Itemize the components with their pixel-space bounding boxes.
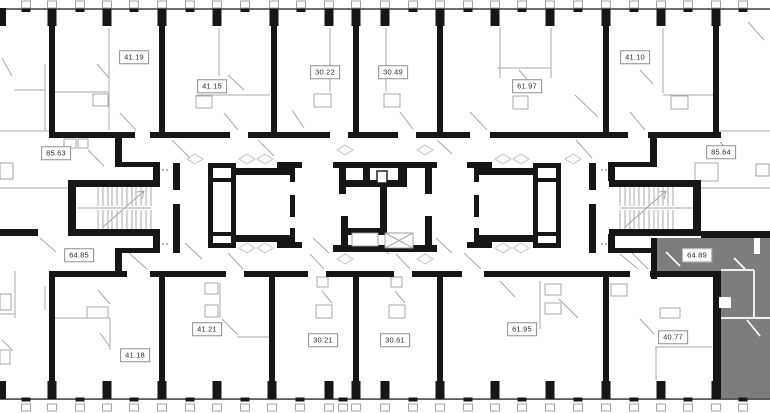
unit-area-label-61-97[interactable]: 61.97 <box>512 79 542 93</box>
unit-area-label-41-10[interactable]: 41.10 <box>620 50 650 64</box>
unit-area-label-30-22[interactable]: 30.22 <box>310 65 340 79</box>
window-marks-bottom <box>22 404 748 411</box>
stairs-left <box>78 187 151 229</box>
unit-area-label-85-64[interactable]: 85.64 <box>706 145 736 159</box>
floorplan-drawing <box>0 0 770 413</box>
unit-area-label-41-21[interactable]: 41.21 <box>192 322 222 336</box>
unit-area-label-30-21[interactable]: 30.21 <box>308 333 338 347</box>
unit-area-label-30-49[interactable]: 30.49 <box>378 65 408 79</box>
unit-area-label-30-61[interactable]: 30.61 <box>380 333 410 347</box>
unit-area-label-41-19[interactable]: 41.19 <box>119 50 149 64</box>
unit-area-label-64-85[interactable]: 64.85 <box>64 248 94 262</box>
floor-plan: 41.19 41.15 30.22 30.49 61.97 41.10 85.6… <box>0 0 770 413</box>
window-marks-top <box>22 1 748 8</box>
unit-area-label-85-63[interactable]: 85.63 <box>41 146 71 160</box>
unit-area-label-41-15[interactable]: 41.15 <box>197 79 227 93</box>
unit-area-label-41-18[interactable]: 41.18 <box>120 348 150 362</box>
unit-area-label-40-77[interactable]: 40.77 <box>658 330 688 344</box>
unit-area-label-64-89-selected[interactable]: 64.89 <box>682 248 712 262</box>
unit-area-label-61-95[interactable]: 61.95 <box>507 322 537 336</box>
stairs-right <box>620 187 692 229</box>
